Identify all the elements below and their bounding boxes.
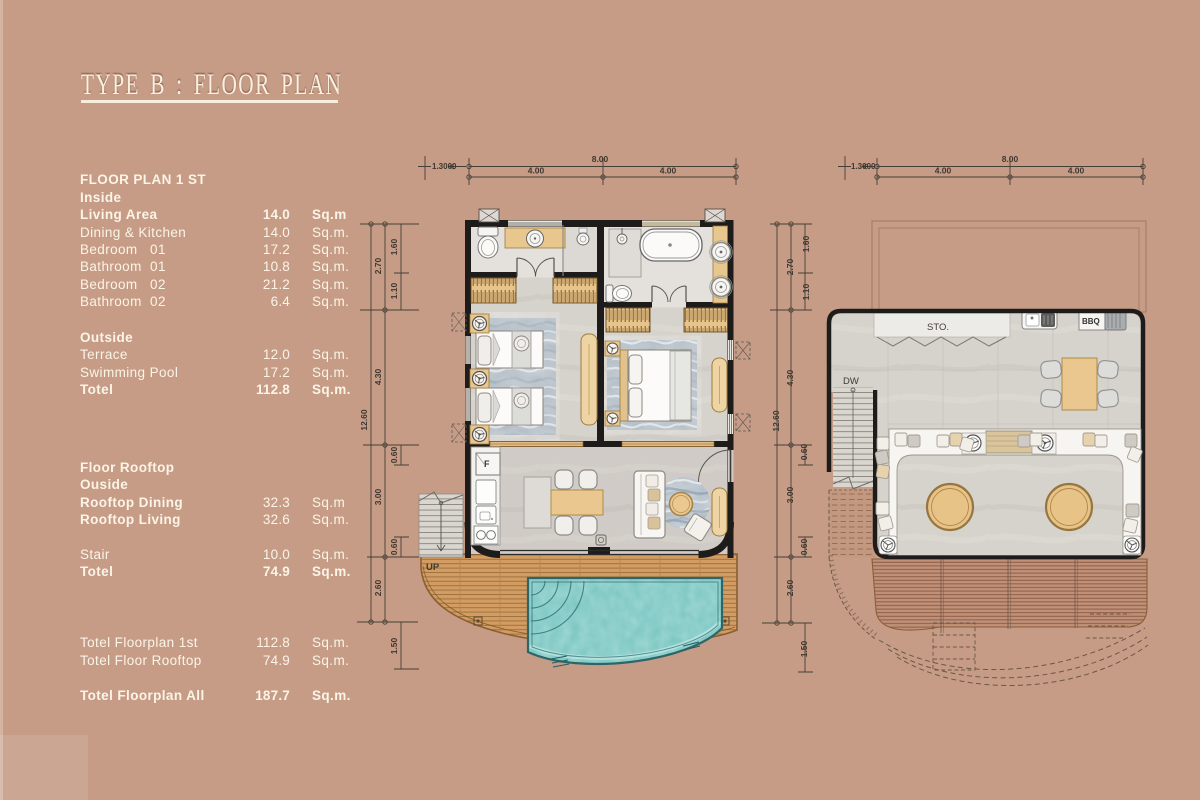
svg-text:12.60: 12.60 [359,409,369,431]
svg-text:2.60: 2.60 [373,579,383,596]
svg-text:F: F [484,459,490,469]
svg-text:12.60: 12.60 [771,410,781,432]
svg-text:1.3000: 1.3000 [432,162,457,171]
svg-text:4.00: 4.00 [660,166,677,176]
svg-text:BBQ: BBQ [1082,317,1100,326]
svg-text:8.00: 8.00 [1002,154,1019,164]
svg-text:2.70: 2.70 [373,257,383,274]
svg-text:1.50: 1.50 [389,637,399,654]
svg-text:UP: UP [426,562,440,573]
svg-text:4.00: 4.00 [528,166,545,176]
svg-text:1.10: 1.10 [389,282,399,299]
svg-text:4.00: 4.00 [1068,166,1085,176]
svg-text:4.30: 4.30 [785,369,795,386]
svg-text:0.60: 0.60 [799,443,809,460]
svg-text:1.60: 1.60 [801,235,811,252]
svg-text:0.60: 0.60 [389,446,399,463]
svg-text:0.60: 0.60 [389,538,399,555]
svg-text:1.10: 1.10 [801,283,811,300]
svg-text:1.3000: 1.3000 [851,162,876,171]
svg-text:0.60: 0.60 [799,538,809,555]
svg-text:STO.: STO. [927,322,949,333]
svg-text:4.00: 4.00 [935,166,952,176]
svg-text:4.30: 4.30 [373,368,383,385]
svg-text:2.70: 2.70 [785,258,795,275]
svg-text:2.60: 2.60 [785,579,795,596]
svg-text:1.60: 1.60 [389,238,399,255]
svg-text:8.00: 8.00 [592,154,609,164]
svg-text:DW: DW [843,376,859,387]
svg-text:3.00: 3.00 [373,488,383,505]
svg-text:1.50: 1.50 [799,640,809,657]
svg-text:3.00: 3.00 [785,486,795,503]
